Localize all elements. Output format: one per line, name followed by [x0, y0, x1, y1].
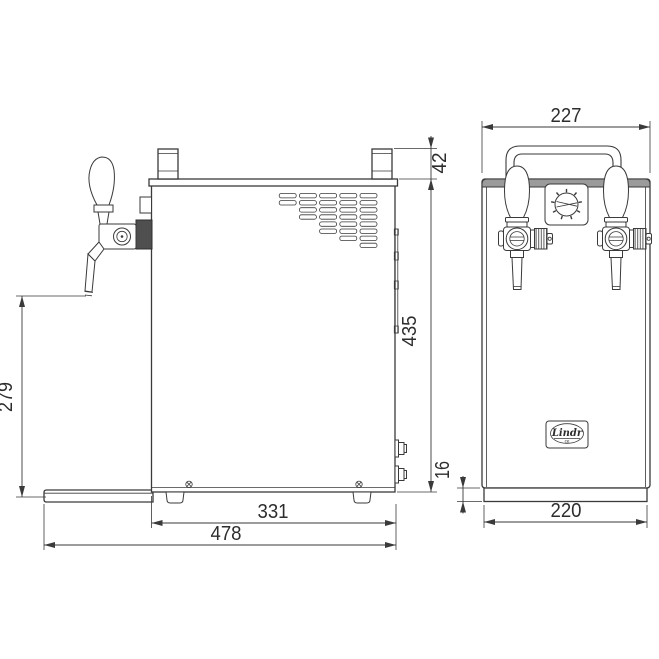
- logo-script-text: Lindr: [551, 428, 583, 439]
- dim-label-435: 435: [399, 316, 421, 347]
- front-view: Lindr ce: [482, 146, 652, 502]
- handle-post-left: [158, 149, 178, 179]
- tap-mount-block: [140, 197, 152, 213]
- thermostat-dial: [555, 193, 578, 216]
- side-cabinet-body: [152, 183, 396, 492]
- technical-drawing: Lindr ce 279 42 435: [0, 0, 659, 659]
- thermostat-panel: [545, 184, 588, 225]
- drip-tray: [44, 490, 153, 502]
- compensator-knurl: [535, 229, 548, 250]
- foot-left: [166, 492, 184, 503]
- handle-post-right: [372, 149, 392, 179]
- dim-label-331: 331: [258, 501, 289, 523]
- dim-label-220: 220: [551, 500, 582, 522]
- dim-label-42: 42: [429, 153, 451, 174]
- front-tap-spout: [512, 258, 522, 290]
- logo-ce-text: ce: [565, 439, 570, 444]
- side-top-cap: [149, 179, 398, 186]
- foot-right: [353, 492, 371, 503]
- tap-knurled-nut: [136, 220, 152, 249]
- dim-label-16: 16: [432, 461, 454, 479]
- brand-logo: Lindr ce: [546, 421, 588, 448]
- dim-label-478: 478: [211, 523, 242, 545]
- front-tap-handle: [505, 166, 530, 218]
- dim-label-279: 279: [0, 382, 17, 412]
- dim-label-227: 227: [551, 105, 582, 127]
